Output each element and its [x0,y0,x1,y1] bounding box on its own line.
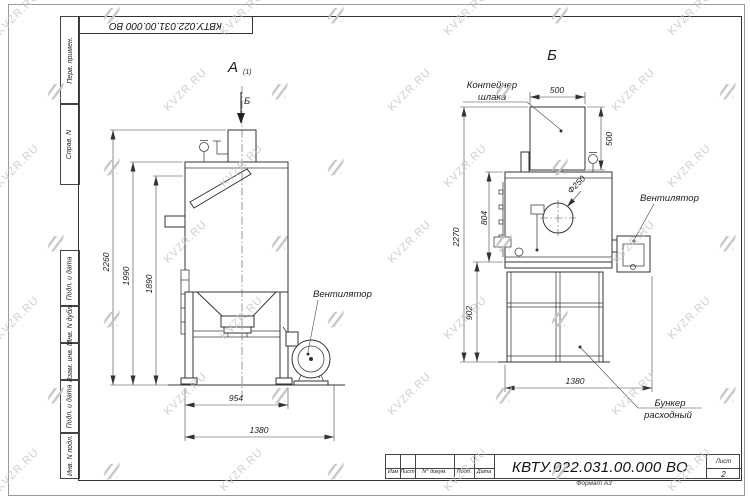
margin-box-vzam-inv: Взам. инв. N [60,342,80,381]
col-ndoc: N° докум. [415,466,454,478]
margin-label: Подп. и дата [67,257,74,301]
margin-label: Инв. N дубл. [67,304,74,345]
col-podp: Подп. [454,466,474,478]
col-list: Лист [400,466,415,478]
margin-label: Справ. N [67,129,74,158]
margin-box-inv-podl: Инв. N подл. [60,432,80,479]
title-block: Изм Лист N° докум. Подп. Дата КВТУ.022.0… [385,454,740,479]
margin-label: Взам. инв. N [67,341,74,382]
col-data: Дата [474,466,494,478]
sheet-number: 2 [706,468,741,480]
top-doc-number-box: КВТУ.022.031.00.000 ВО [78,16,253,34]
stamp-doc-number: КВТУ.022.031.00.000 ВО [494,455,706,480]
margin-label: Подп. и дата [67,385,74,429]
format-label: Формат А3 [540,480,648,487]
margin-box-sprav-n: Справ. N [60,103,80,185]
drawing-sheet: Перв. примен. Справ. N Подп. и дата Инв.… [0,0,750,500]
top-doc-number: КВТУ.022.031.00.000 ВО [109,20,222,31]
margin-box-inv-dubl: Инв. N дубл. [60,305,80,344]
margin-box-podp-data-2: Подп. и дата [60,379,80,434]
margin-box-perv-primen: Перв. примен. [60,16,80,105]
drawing-frame [78,16,742,481]
sheet-label: Лист [706,455,741,468]
col-izm: Изм [386,466,400,478]
margin-label: Инв. N подл. [67,435,74,476]
margin-box-podp-data-1: Подп. и дата [60,250,80,307]
margin-label: Перв. примен. [67,37,74,84]
